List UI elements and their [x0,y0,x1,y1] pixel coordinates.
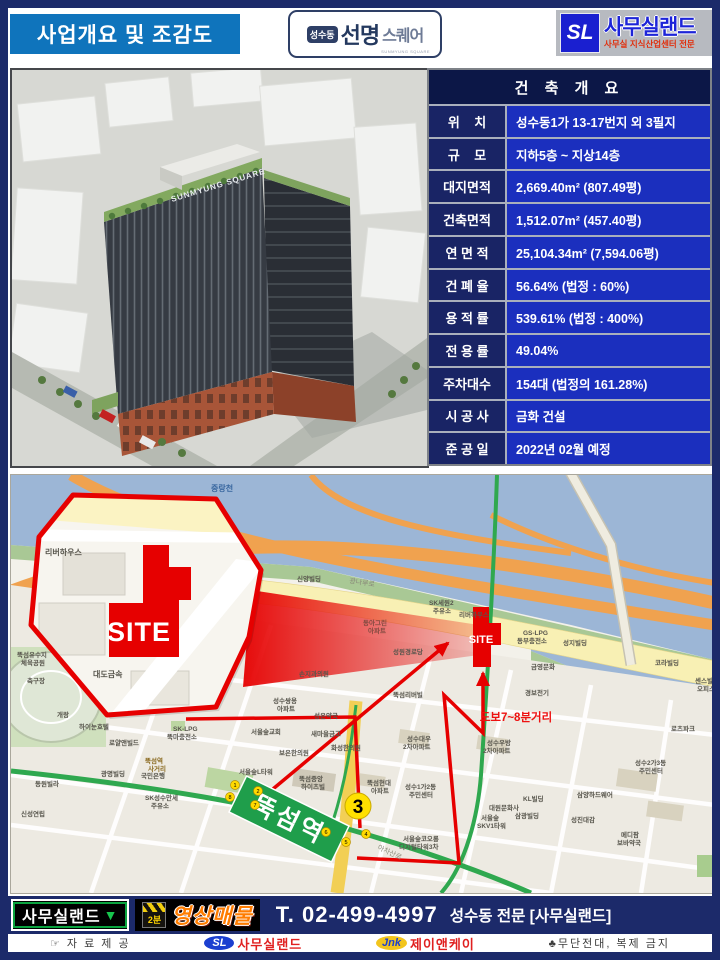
table-row-label: 용 적 률 [429,302,507,333]
page-title: 사업개요 및 조감도 [10,14,240,54]
table-row-value: 금화 건설 [507,401,710,432]
header: 사업개요 및 조감도 성수동 선명 스퀘어 SUNMYUNG SQUARE SL… [8,8,712,64]
sunmyung-square-logo: 성수동 선명 스퀘어 SUNMYUNG SQUARE [288,10,442,58]
exit-circle-number: 6 [324,830,327,836]
samusil-land-logo: SL 사무실랜드 사무실 지식산업센터 전문 [556,10,712,56]
jnk-name: 제이앤케이 [410,934,475,953]
logo-name-light: 스퀘어 [382,22,423,46]
table-row-label: 대지면적 [429,171,507,202]
logo-badge: 성수동 [307,26,338,43]
building-table-body: 위 치성수동1가 13-17번지 외 3필지규 모지하5층 ~ 지상14층대지면… [429,104,710,464]
site-label: SITE [469,634,493,646]
sl-mark-icon: SL [560,13,600,53]
table-row-value: 56.64% (법정 : 60%) [507,270,710,301]
samusil-land-small-logo: SL 사무실랜드 [204,934,302,953]
exit-circle-number: 7 [253,803,256,809]
location-map: SITE SITE 도보7~8분거리 광나루로 아차산로 뚝섬역 [10,474,716,894]
table-row: 건 폐 율56.64% (법정 : 60%) [429,268,710,301]
flyer-page: 사업개요 및 조감도 성수동 선명 스퀘어 SUNMYUNG SQUARE SL… [0,0,720,960]
no-copy-note: ♣무단전대, 복제 금지 [549,935,670,951]
building-rendering: SUNMYUNG SQUARE [10,68,429,468]
sl-small-name: 사무실랜드 [237,934,302,953]
table-row-label: 준 공 일 [429,433,507,464]
table-row-label: 건축면적 [429,204,507,235]
exit-circle-number: 1 [233,783,236,789]
exit-circle-number: 2 [256,789,259,795]
exit-circle-number: 4 [364,832,367,838]
footer-bar: 사무실랜드 ▼ 2분 영상매물 T. 02-499-4997 성수동 전문 [사… [8,896,712,934]
table-row: 연 면 적25,104.34m² (7,594.06평) [429,235,710,268]
table-row-value: 49.04% [507,335,710,366]
video-listing-label: 영상매물 [171,900,252,930]
bottom-strip: ☞ 자 료 제 공 SL 사무실랜드 Jnk 제이앤케이 ♣무단전대, 복제 금… [8,934,712,952]
building-overview-table: 건 축 개 요 위 치성수동1가 13-17번지 외 3필지규 모지하5층 ~ … [427,68,712,466]
jnk-logo: Jnk 제이앤케이 [376,934,475,953]
table-row-value: 지하5층 ~ 지상14층 [507,139,710,170]
table-row-value: 2,669.40m² (807.49평) [507,171,710,202]
building-rendering-art: SUNMYUNG SQUARE [12,70,427,466]
table-row: 시 공 사금화 건설 [429,399,710,432]
table-row-value: 2022년 02월 예정 [507,433,710,464]
logo-subtitle: SUNMYUNG SQUARE [381,49,430,54]
table-row-label: 연 면 적 [429,237,507,268]
table-row-value: 154대 (법정의 161.28%) [507,368,710,399]
jnk-oval-icon: Jnk [376,936,407,950]
sl-brand-subtitle: 사무실 지식산업센터 전문 [604,40,695,49]
table-row-label: 위 치 [429,106,507,137]
logo-name-bold: 선명 [341,18,379,50]
table-row-value: 1,512.07m² (457.40평) [507,204,710,235]
tower-right-wing [264,170,354,386]
callout-site-label: SITE [107,617,171,647]
table-row: 준 공 일2022년 02월 예정 [429,431,710,464]
footer-video-badge: 2분 영상매물 [135,899,259,931]
table-row-value: 성수동1가 13-17번지 외 3필지 [507,106,710,137]
footer-brand-name: 사무실랜드 [22,903,101,927]
table-row: 주차대수154대 (법정의 161.28%) [429,366,710,399]
table-row-label: 전 용 률 [429,335,507,366]
exit-3-number: 3 [353,797,364,818]
table-row-label: 시 공 사 [429,401,507,432]
exit-circle-number: 8 [228,795,231,801]
table-row: 규 모지하5층 ~ 지상14층 [429,137,710,170]
table-row: 대지면적2,669.40m² (807.49평) [429,169,710,202]
footer-brand-box: 사무실랜드 ▼ [11,899,129,931]
table-title: 건 축 개 요 [429,70,710,104]
clapper-label: 2분 [143,912,165,927]
table-row-label: 규 모 [429,139,507,170]
table-row-value: 539.61% (법정 : 400%) [507,302,710,333]
table-row-label: 건 폐 율 [429,270,507,301]
table-row: 용 적 률539.61% (법정 : 400%) [429,300,710,333]
green-triangle-icon: ▼ [104,907,119,923]
clapperboard-icon: 2분 [142,902,166,928]
table-row-label: 주차대수 [429,368,507,399]
footer-phone: T. 02-499-4997 [276,902,438,928]
sl-oval-icon: SL [204,936,234,950]
exit-circle-number: 5 [344,840,347,846]
table-row: 전 용 률49.04% [429,333,710,366]
sl-brand-name: 사무실랜드 [604,17,696,38]
table-row-value: 25,104.34m² (7,594.06평) [507,237,710,268]
map-art: SITE SITE 도보7~8분거리 광나루로 아차산로 뚝섬역 [11,475,715,893]
walk-distance-label: 도보7~8분거리 [480,710,552,724]
footer-tagline: 성수동 전문 [사무실랜드] [450,904,612,926]
table-row: 위 치성수동1가 13-17번지 외 3필지 [429,104,710,137]
data-provider-note: ☞ 자 료 제 공 [50,935,131,951]
table-row: 건축면적1,512.07m² (457.40평) [429,202,710,235]
